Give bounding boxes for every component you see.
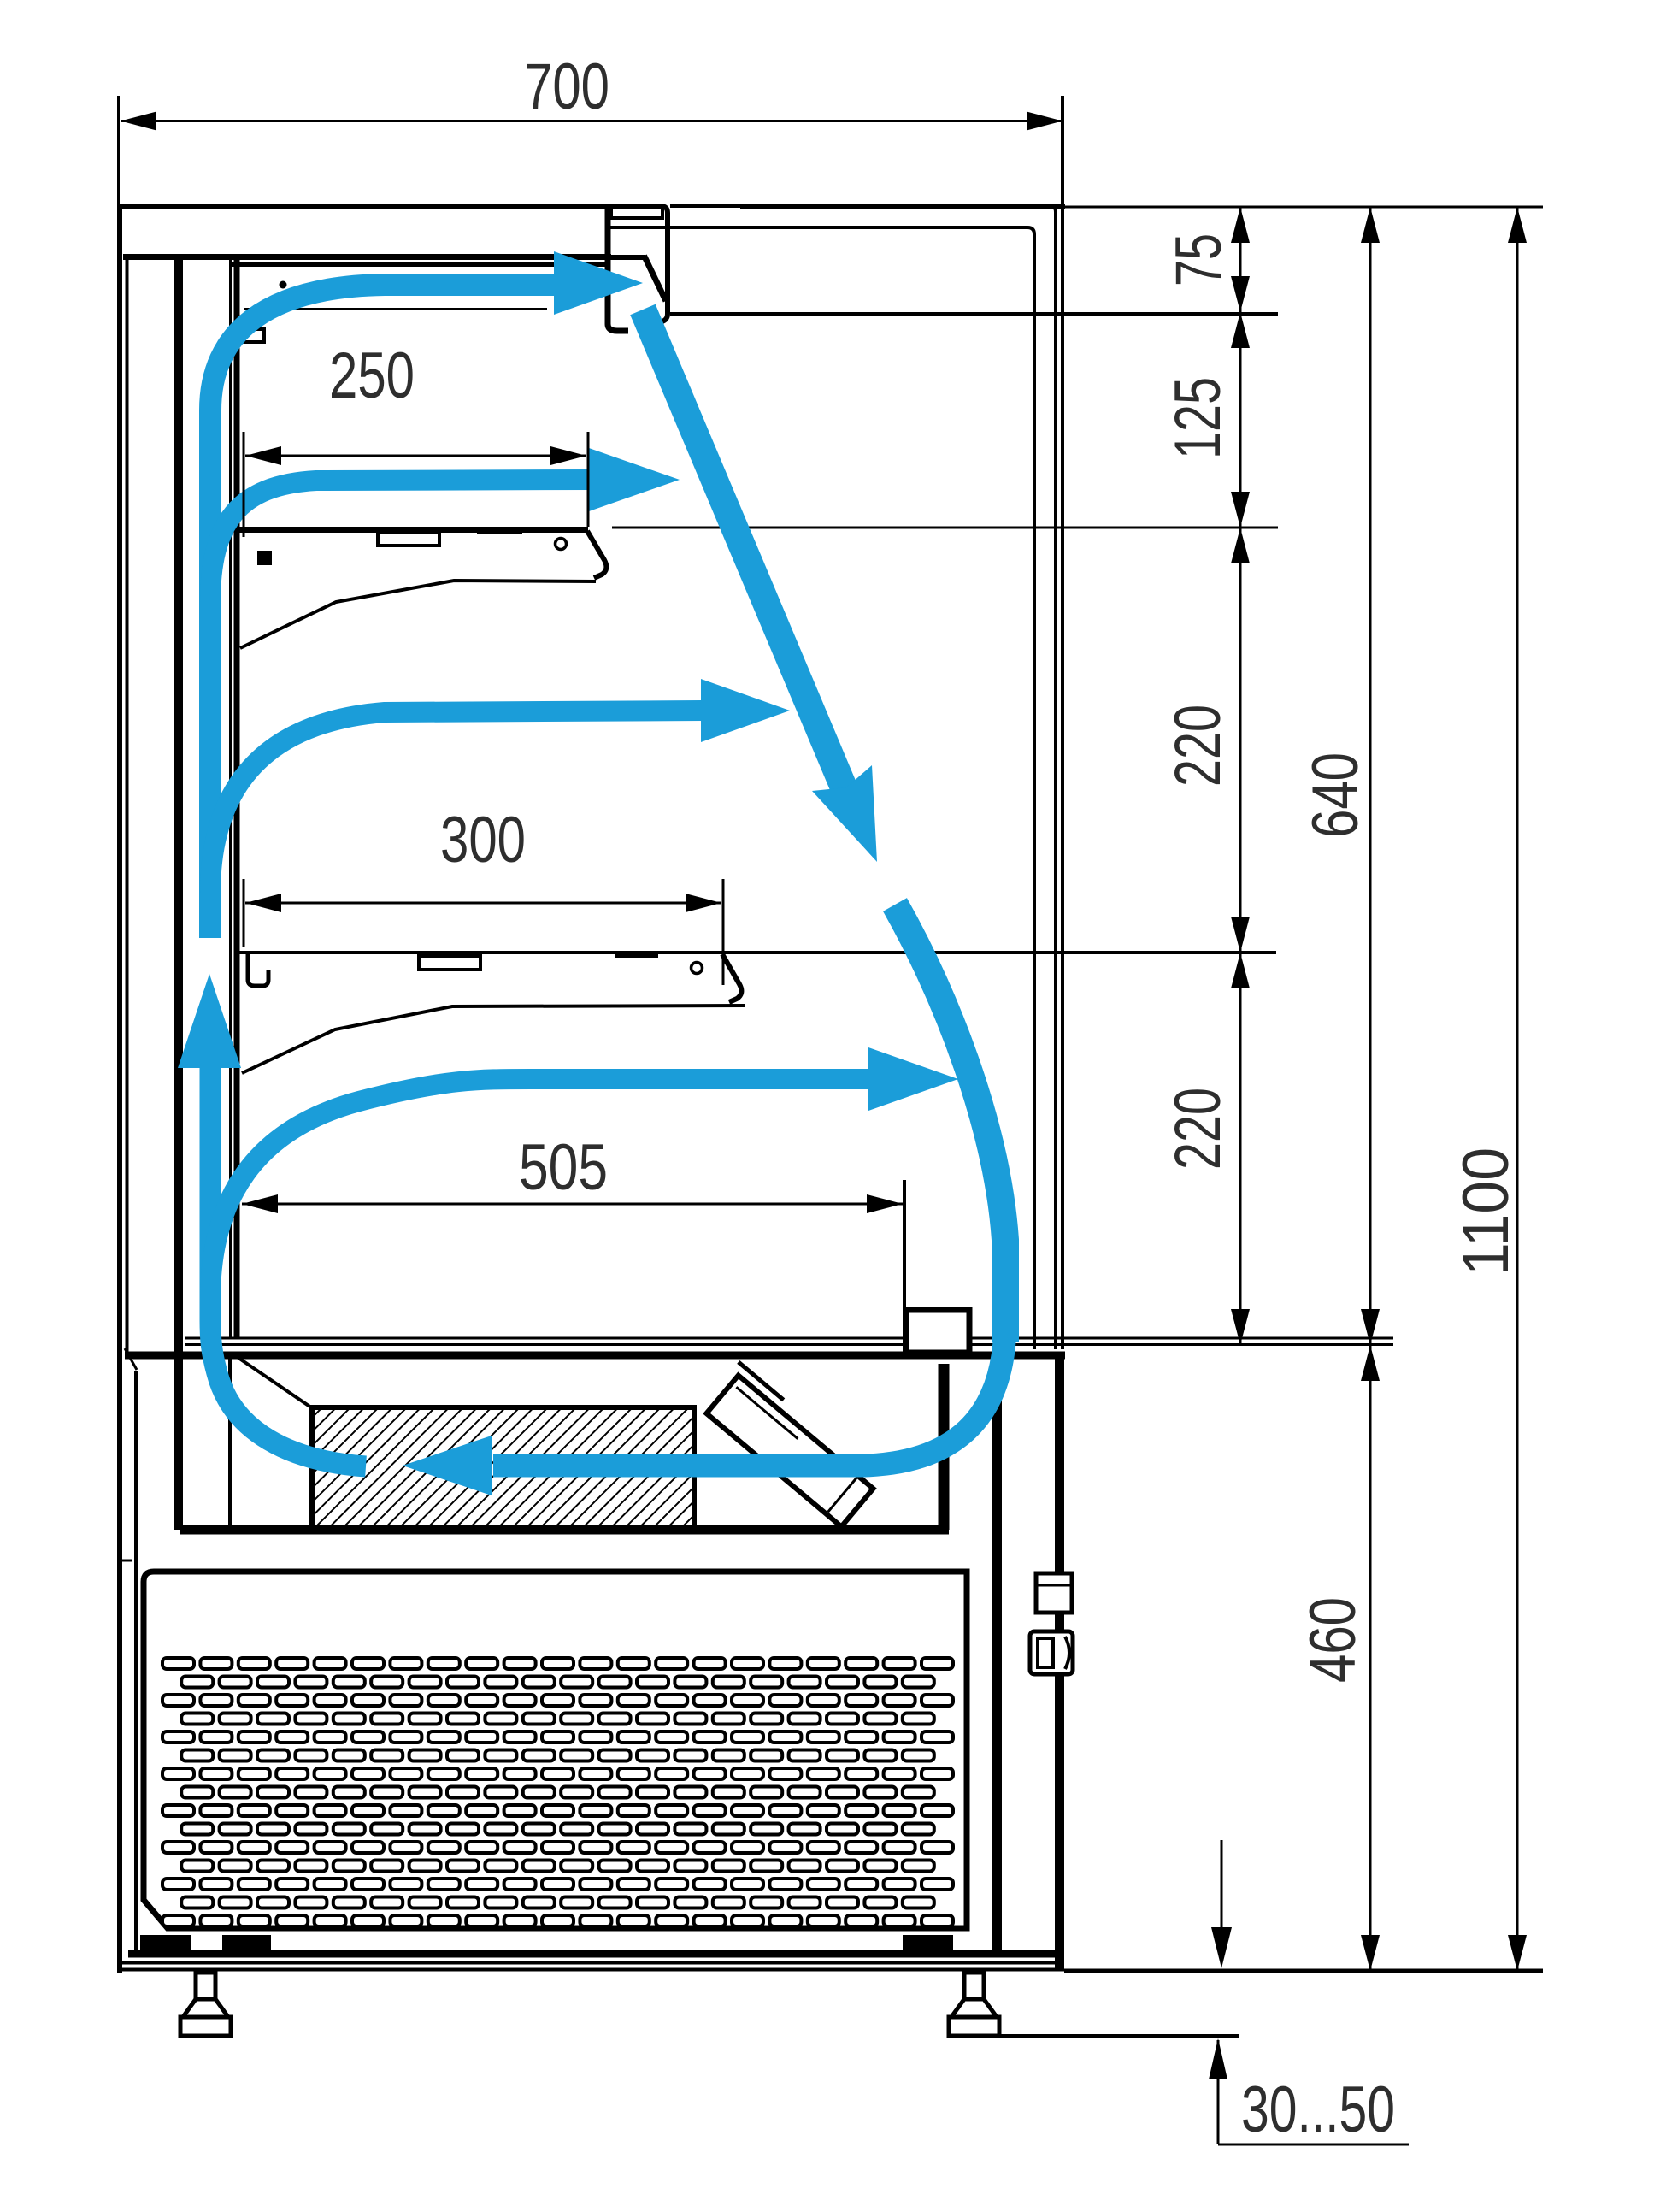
svg-text:75: 75 bbox=[1163, 233, 1235, 286]
svg-text:220: 220 bbox=[1162, 705, 1234, 787]
svg-text:640: 640 bbox=[1299, 752, 1372, 838]
svg-text:250: 250 bbox=[329, 339, 415, 412]
svg-text:1100: 1100 bbox=[1450, 1147, 1522, 1276]
svg-text:300: 300 bbox=[440, 804, 526, 876]
svg-text:460: 460 bbox=[1297, 1597, 1369, 1683]
svg-text:505: 505 bbox=[519, 1131, 608, 1204]
svg-text:220: 220 bbox=[1162, 1088, 1234, 1170]
svg-text:700: 700 bbox=[524, 50, 609, 123]
svg-text:30...50: 30...50 bbox=[1241, 2073, 1395, 2146]
svg-text:125: 125 bbox=[1162, 377, 1234, 459]
